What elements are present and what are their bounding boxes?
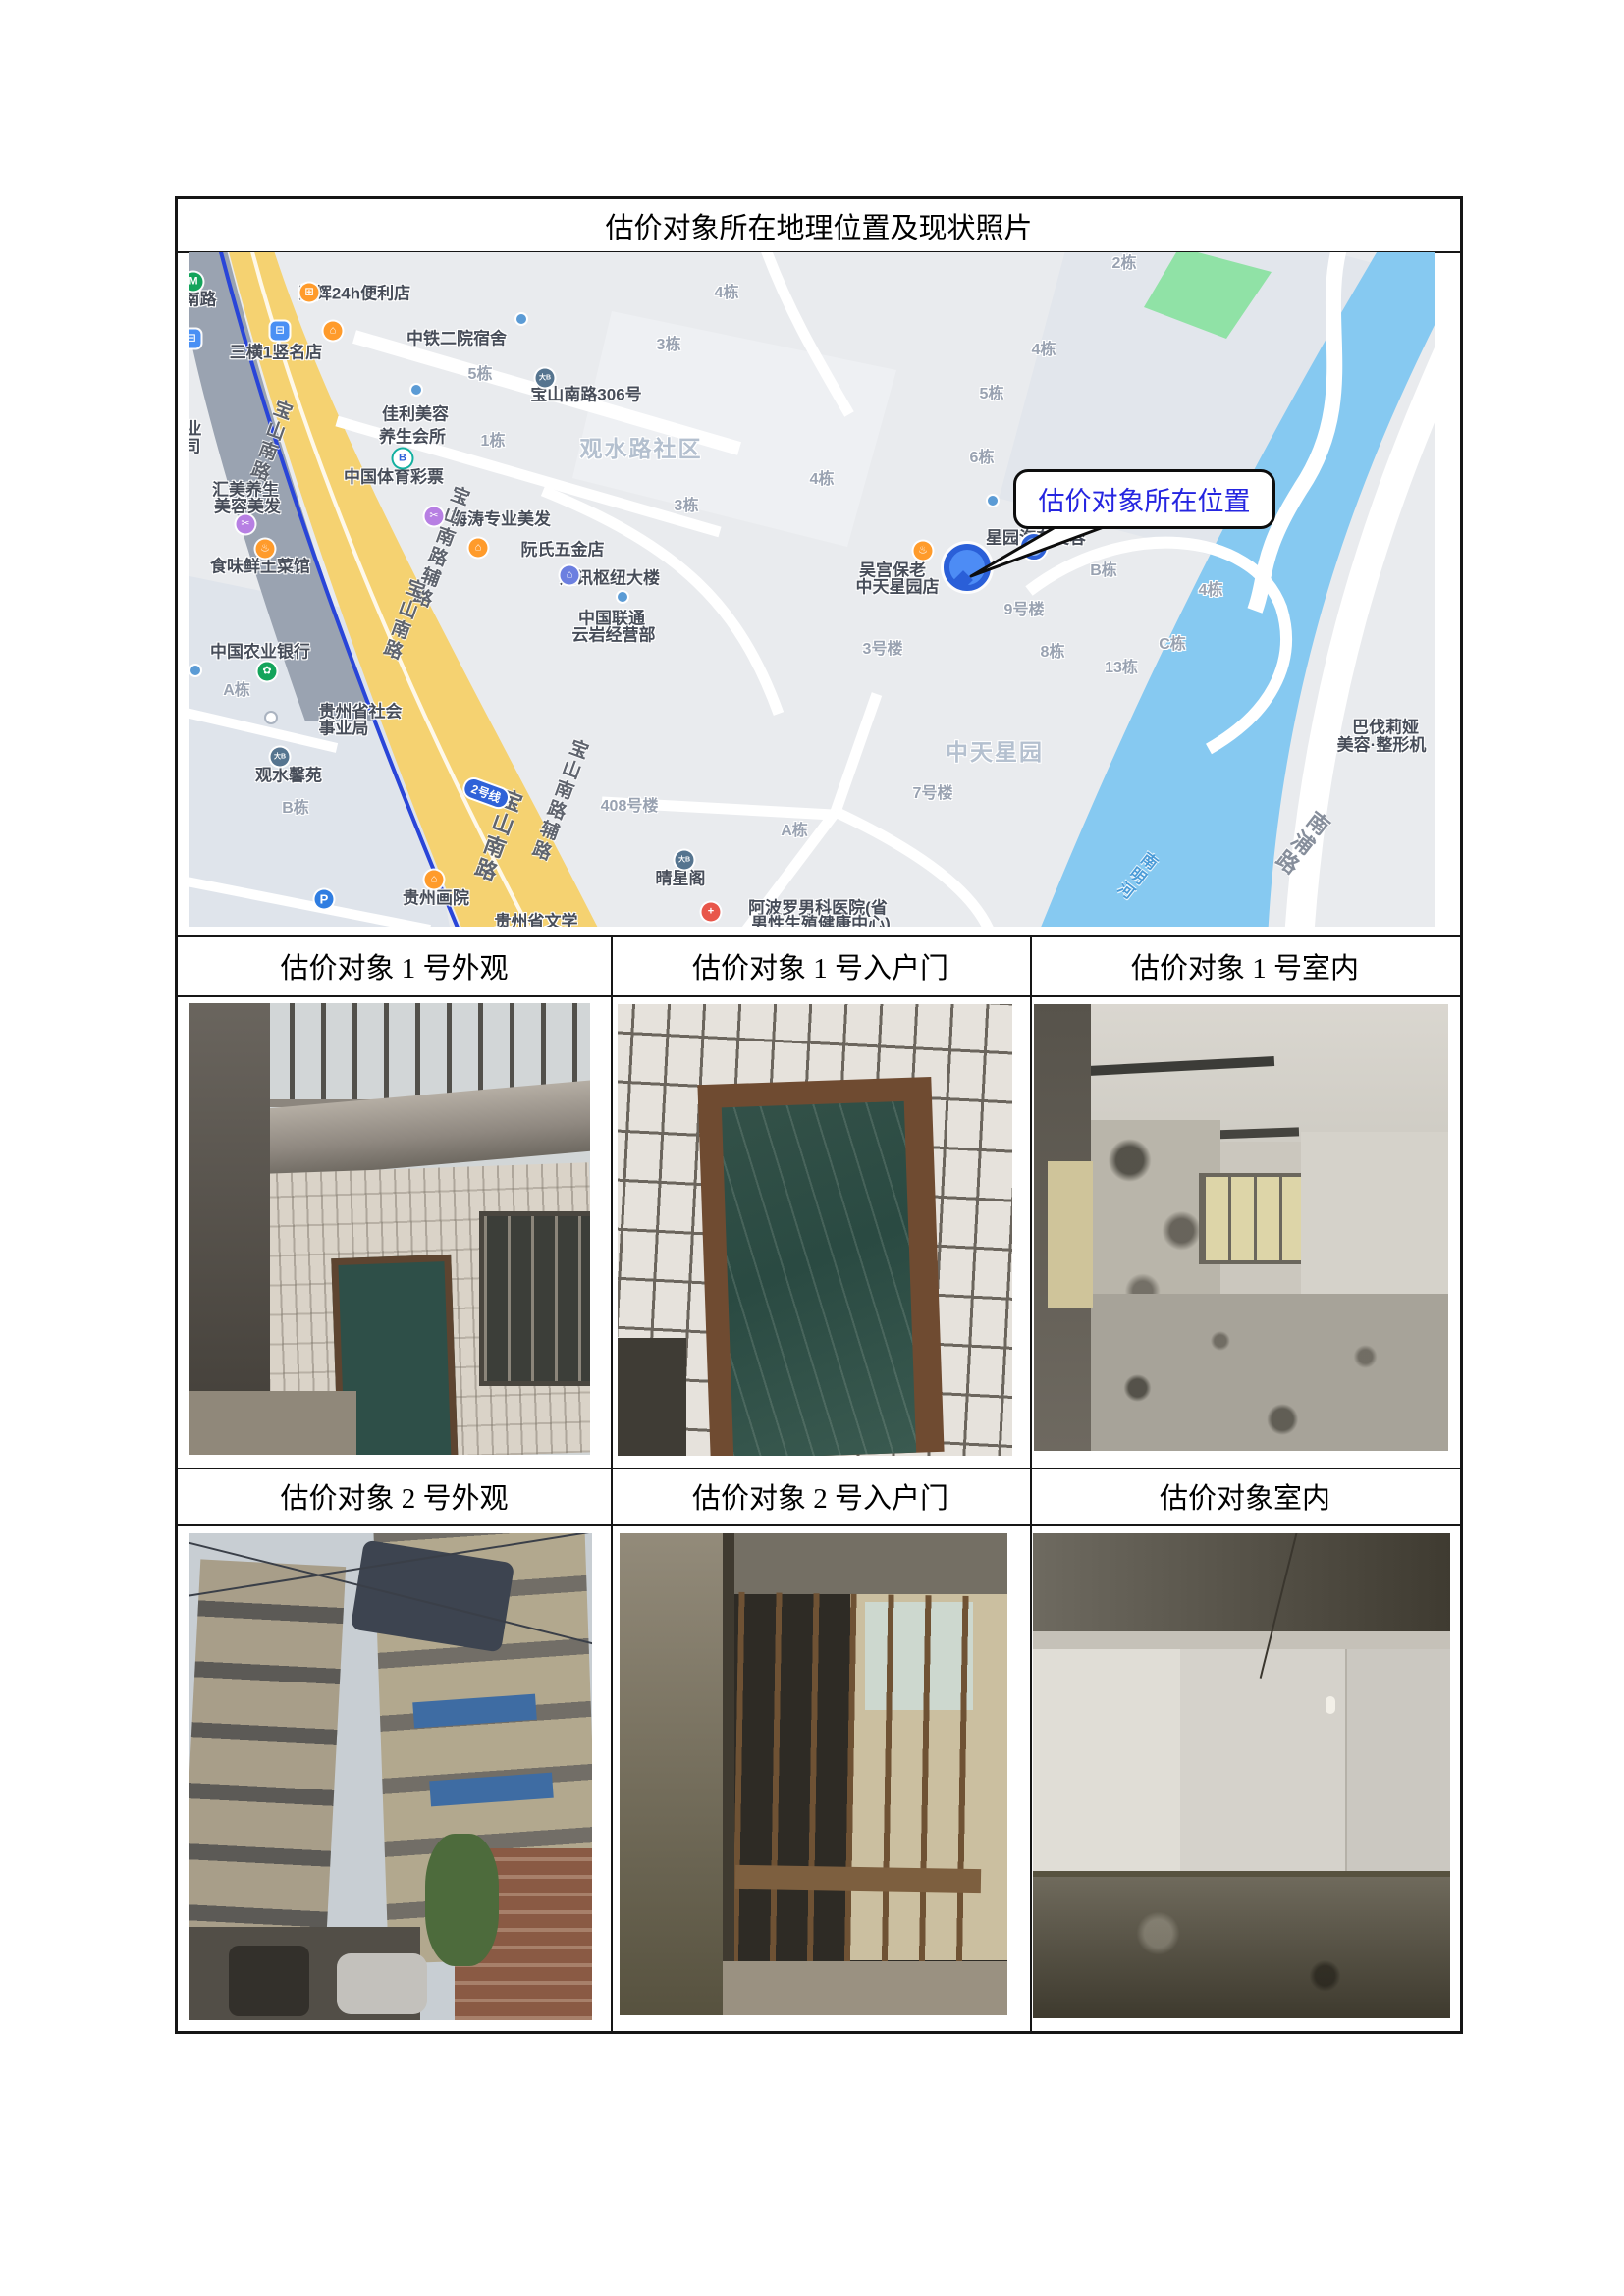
map-label: 云岩经营部 [572, 621, 656, 646]
photo-1-interior [1034, 1004, 1448, 1451]
photo-1-entry-door [618, 1004, 1012, 1456]
map-label: 事业局 [319, 715, 369, 739]
page-title: 估价对象所在地理位置及现状照片 [178, 199, 1460, 251]
wall-corner-line [1345, 1649, 1347, 1877]
report-page: 估价对象所在地理位置及现状照片 估价对象 1 号外观 估价对象 1 号入户门 估… [0, 0, 1624, 2296]
shopping-cart-icon: ⊞ [300, 284, 319, 302]
map-label: 4栋 [1199, 576, 1223, 600]
restaurant-icon: ♨ [914, 542, 933, 561]
concrete-pillar [620, 1533, 734, 2015]
map-label: 9号楼 [1004, 596, 1045, 619]
map-label: 观水馨苑 [255, 762, 322, 786]
poi-dot-icon [266, 713, 276, 722]
right-wall [1347, 1649, 1450, 1877]
left-building [189, 1559, 346, 1988]
dark-floor [1033, 1877, 1450, 2018]
poi-circle-icon [1021, 534, 1047, 560]
target-location-pin-icon [944, 544, 991, 591]
ground-clutter [189, 1391, 356, 1455]
map-label: B栋 [282, 794, 309, 818]
photo-2-exterior [189, 1533, 592, 2020]
right-wall [1301, 1132, 1448, 1304]
scissors-icon: ✂ [425, 507, 444, 526]
scissors-icon: ✂ [237, 515, 255, 534]
map-label: 3栋 [675, 492, 699, 515]
map-label: 3号楼 [863, 635, 903, 659]
map-label: 中国体育彩票 [344, 463, 444, 488]
poi-dot-icon [988, 496, 998, 506]
bus-stop-icon: B [394, 450, 412, 468]
table-line [178, 995, 1460, 997]
bank-icon: ✿ [258, 663, 277, 681]
map-art [189, 252, 1435, 927]
map-label: 观水路社区 [580, 430, 703, 463]
shadow-corner [618, 1338, 686, 1456]
map-label: C栋 [1159, 630, 1186, 654]
gate-crossbar [735, 1865, 981, 1893]
photo-header-2-interior: 估价对象室内 [1030, 1468, 1460, 1524]
metal-gate-bars [732, 1592, 985, 1989]
photo-2-entry-door [620, 1533, 1007, 2015]
map-label: A栋 [223, 676, 250, 700]
poi-dot-icon [190, 666, 200, 675]
map-label: 4栋 [715, 279, 739, 302]
map-label: 1栋 [481, 427, 506, 451]
address-badge-icon: 大B [676, 851, 694, 870]
bus-icon: ⊟ [189, 330, 201, 348]
map-label: 美容·整形机 [1337, 731, 1427, 756]
left-window-glow [1048, 1161, 1093, 1308]
map-label: 佳利美容 [382, 400, 449, 425]
map-label: 5栋 [980, 380, 1004, 403]
left-wall [1033, 1649, 1180, 1877]
map-label: 5栋 [468, 360, 493, 384]
map-label: 美容美发 [214, 493, 281, 517]
restaurant-icon: ♨ [256, 540, 275, 559]
map-label: 13栋 [1105, 654, 1138, 677]
map-label: 8栋 [1041, 638, 1065, 662]
map-label: A栋 [781, 817, 808, 840]
dark-bag [229, 1946, 309, 2016]
ceiling-dark [1033, 1533, 1450, 1631]
green-metal-door [722, 1101, 916, 1456]
white-bag [337, 1953, 427, 2014]
map-label: 司 [189, 433, 201, 457]
bare-bulb [1326, 1696, 1335, 1714]
address-badge-icon: 大B [271, 748, 290, 767]
ivy [425, 1834, 499, 1966]
photo-header-2-entry-door: 估价对象 2 号入户门 [611, 1468, 1030, 1524]
map-label: 3栋 [657, 331, 681, 354]
location-map: 山南路 凯辉24h便利店 三横1竖名店 中铁二院宿舍 5栋 宝山南路306号 佳… [189, 252, 1435, 927]
hospital-cross-icon: + [702, 903, 721, 922]
poi-dot-icon [618, 592, 627, 602]
bus-icon: ⊟ [271, 322, 290, 341]
poi-dot-icon [411, 385, 421, 395]
shop-bag-icon: ⌂ [469, 539, 488, 558]
callout-target-location: 估价对象所在位置 [1013, 469, 1275, 529]
map-label: 7号楼 [913, 779, 953, 803]
map-label: 男性生殖健康中心) [751, 910, 891, 928]
ceiling-edge [1033, 1631, 1450, 1649]
map-label: 6栋 [970, 444, 995, 467]
map-label: 中国农业银行 [210, 638, 310, 663]
floor [723, 1961, 1007, 2015]
photo-header-2-exterior: 估价对象 2 号外观 [178, 1468, 611, 1524]
poi-dot-icon [516, 314, 526, 324]
photo-header-1-interior: 估价对象 1 号室内 [1030, 935, 1460, 995]
shop-bag-icon: ⌂ [324, 322, 343, 341]
photo-header-1-exterior: 估价对象 1 号外观 [178, 935, 611, 995]
map-label: B栋 [1090, 557, 1117, 580]
dirty-floor [1034, 1294, 1448, 1451]
barred-window [479, 1211, 590, 1386]
photo-2-interior [1033, 1533, 1450, 2018]
photo-1-exterior [189, 1003, 590, 1455]
museum-icon: ⌂ [425, 871, 444, 889]
map-label: 贵州省文学 [495, 908, 578, 928]
map-label: 中铁二院宿舍 [406, 325, 507, 349]
map-label: 408号楼 [601, 792, 659, 816]
shadow-left [189, 1003, 270, 1455]
map-label: 中天星园 [946, 733, 1044, 767]
map-label: 阮氏五金店 [521, 536, 605, 561]
map-label: 4栋 [1032, 336, 1056, 359]
map-label: 养生会所 [379, 423, 446, 448]
map-label: 4栋 [810, 465, 835, 489]
photo-header-1-entry-door: 估价对象 1 号入户门 [611, 935, 1030, 995]
parking-icon: P [315, 890, 334, 909]
table-line [178, 1524, 1460, 1526]
map-label: 2栋 [1112, 252, 1137, 273]
building-icon: ⌂ [561, 566, 579, 585]
map-label: 中天星园店 [856, 573, 940, 598]
map-label: 三横1竖名店 [230, 339, 322, 363]
address-badge-icon: 大B [536, 369, 555, 388]
window [1199, 1173, 1315, 1264]
